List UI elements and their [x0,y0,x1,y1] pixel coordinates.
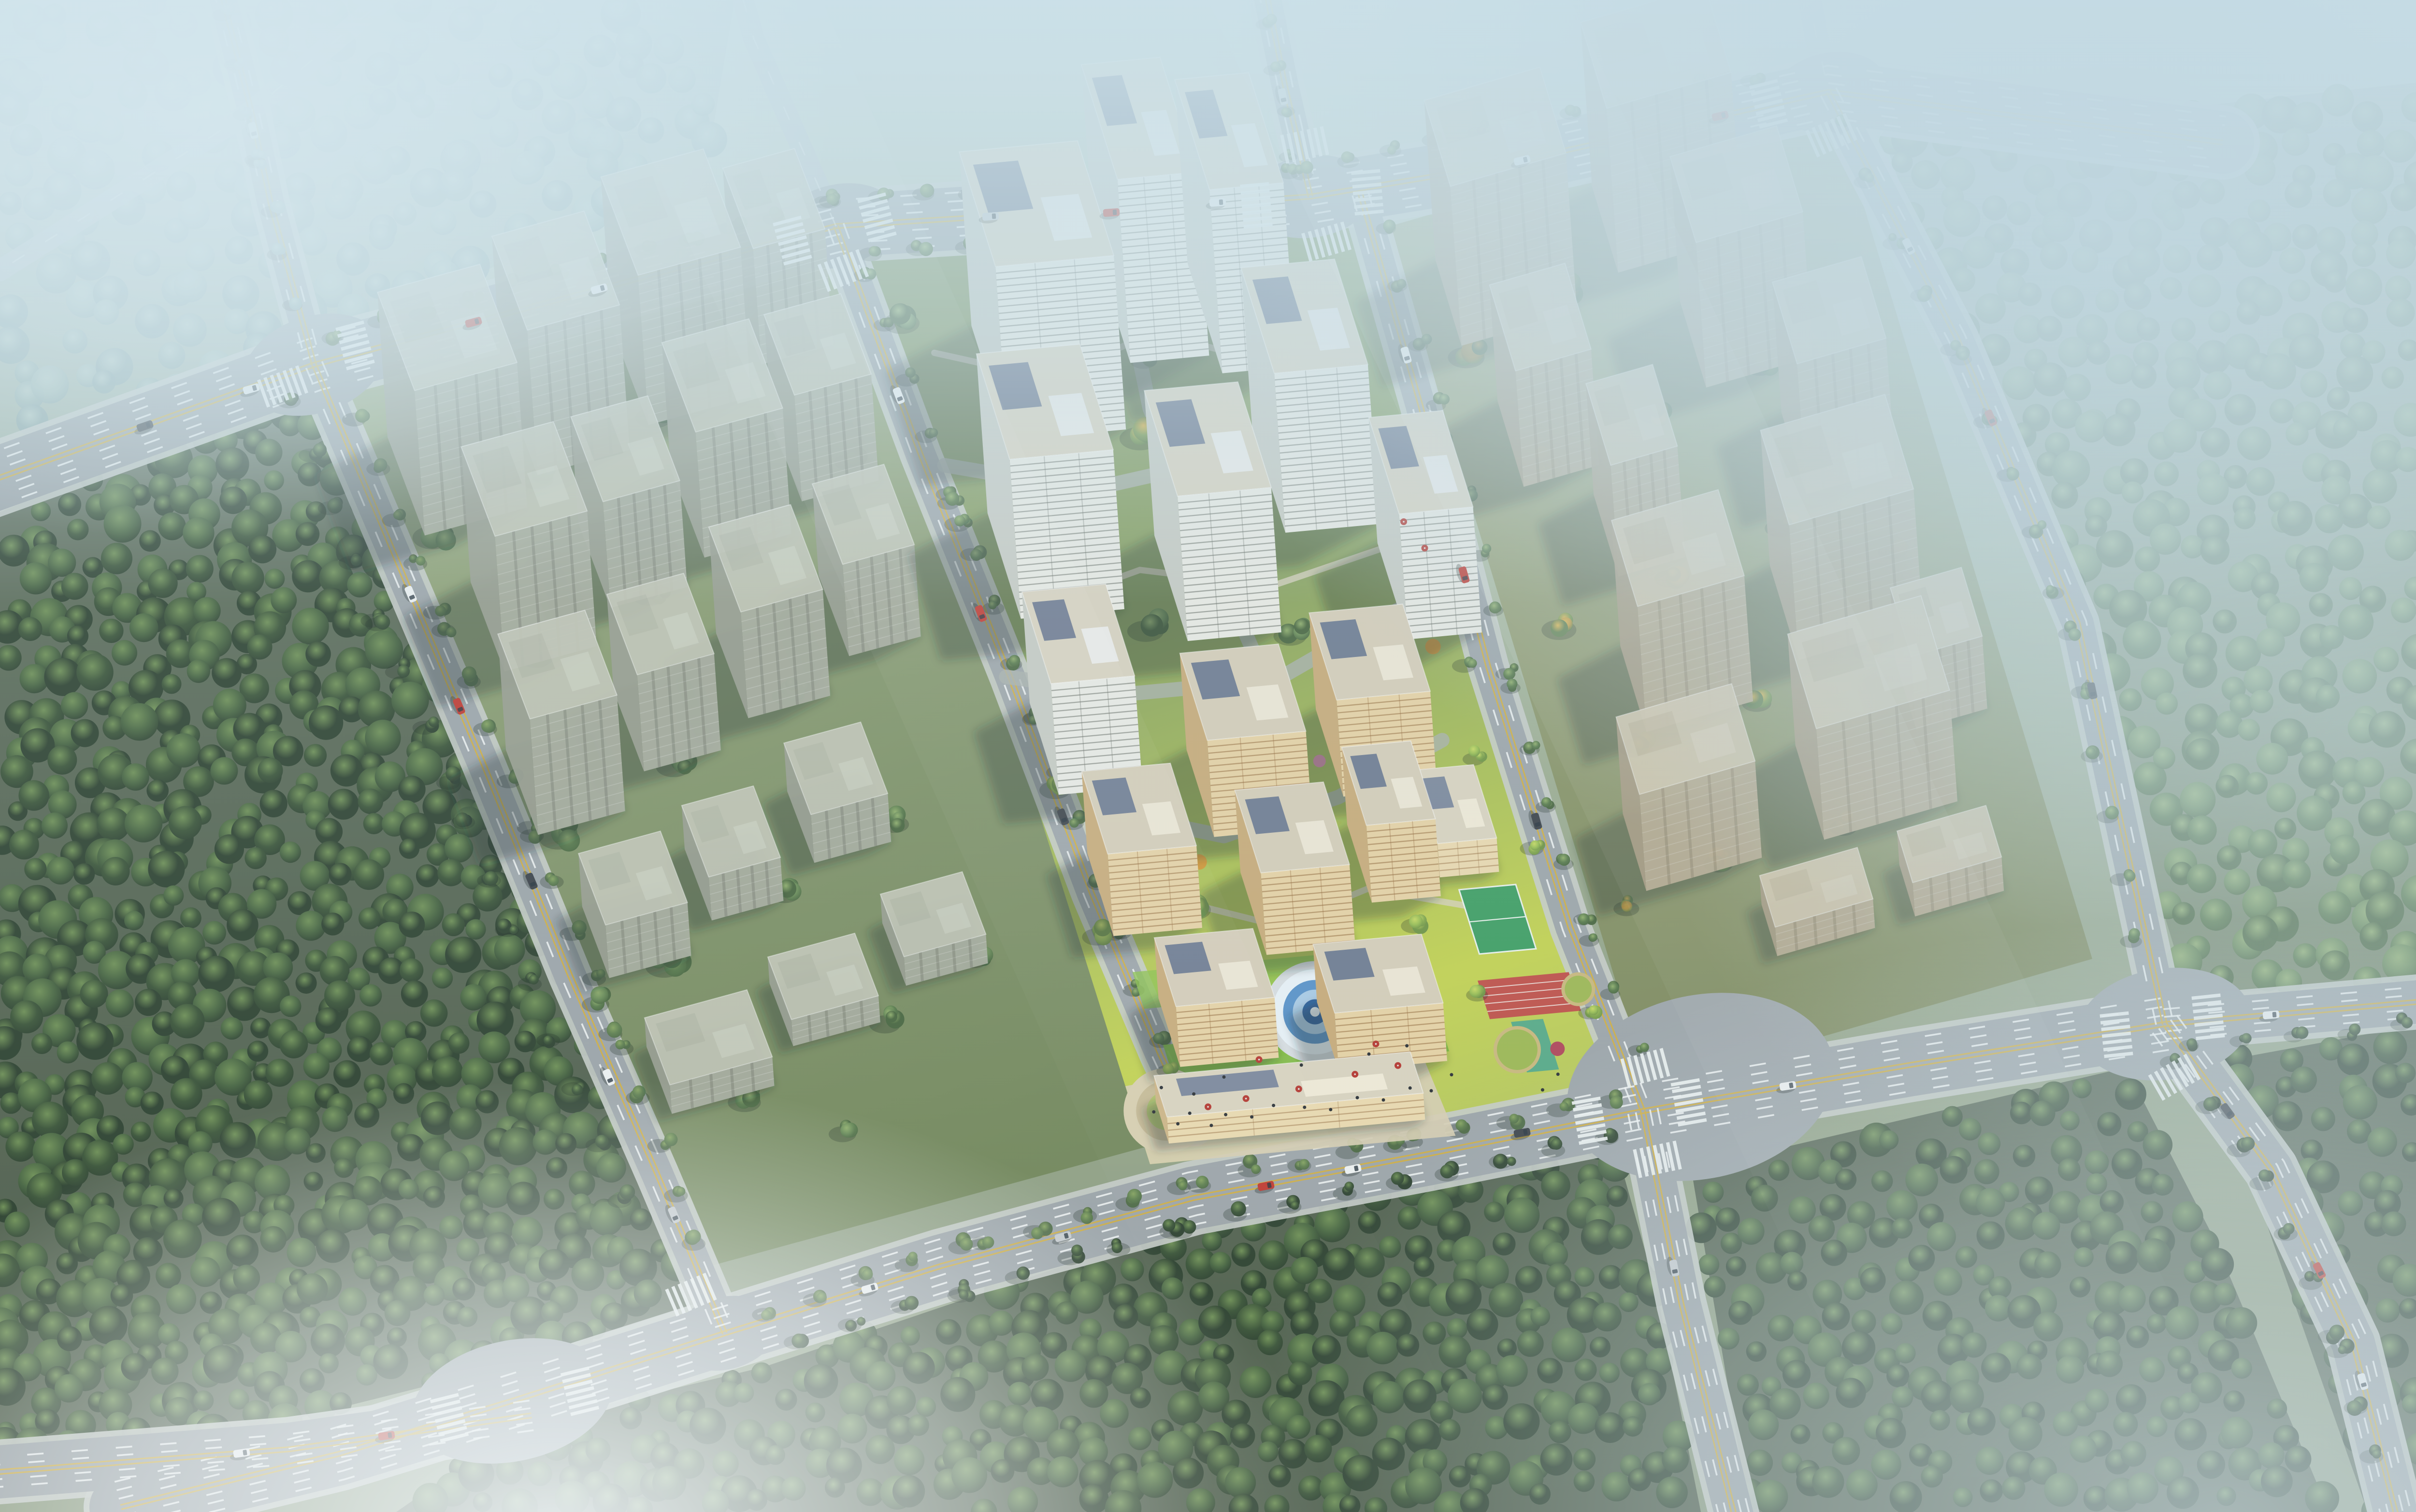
aerial-masterplan-rendering [0,0,2416,1512]
render-canvas [0,0,2416,1512]
fog-overlays [0,0,2416,1512]
